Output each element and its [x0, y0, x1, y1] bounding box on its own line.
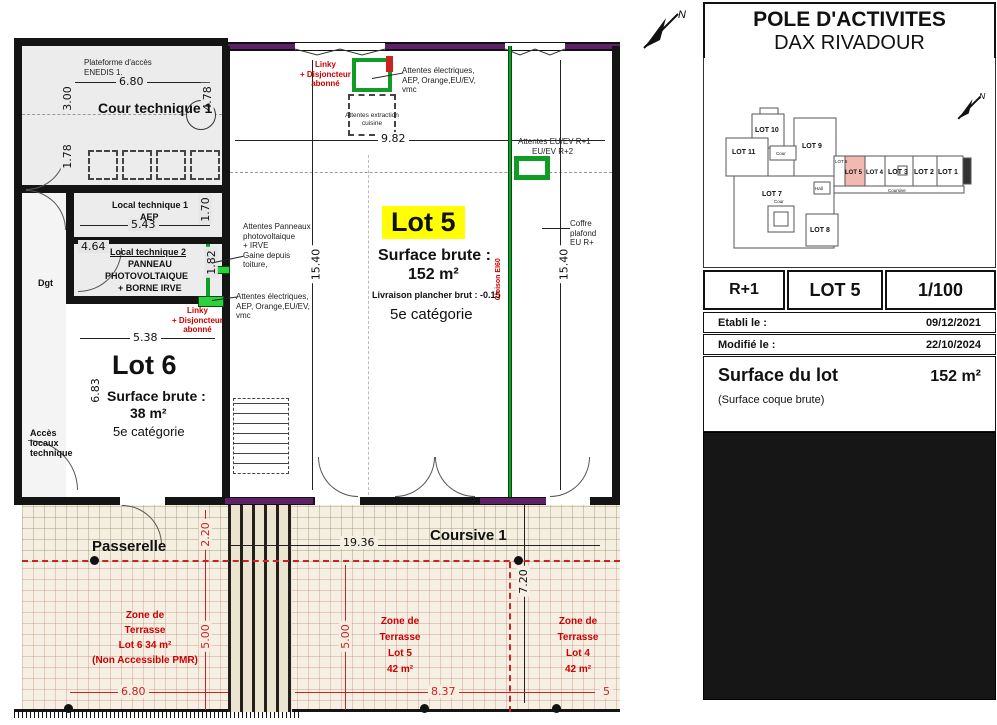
etabli-label: Etabli le : [718, 317, 767, 329]
line: AEP, Orange,EU/EV, [402, 76, 476, 85]
dim-label: 15.40 [557, 246, 570, 284]
axis-dashed-line [230, 172, 612, 173]
local1-aep-label: AEP [140, 212, 159, 222]
lot5-category: 5e catégorie [390, 306, 473, 323]
keyplan-lot9: LOT 9 [802, 143, 822, 150]
panneau-label-3: + BORNE IRVE [118, 283, 182, 293]
post-dot [552, 704, 561, 713]
north-letter: N [979, 91, 986, 101]
line: Attentes EU/EV R+1 [518, 137, 591, 146]
surface-value: 152 m² [930, 368, 981, 386]
dim-line [524, 505, 525, 703]
terrace-lot4-label: Zone de Terrasse Lot 4 42 m² [548, 614, 608, 678]
lot5-title: Lot 5 [382, 206, 465, 239]
railing-hatch [14, 712, 300, 718]
dim-label: 8.37 [428, 685, 459, 698]
line: + Disjoncteur [172, 316, 223, 325]
scale-cell: 1/100 [885, 270, 996, 310]
line: toiture, [243, 260, 267, 269]
keyplan-box: N [703, 58, 996, 268]
panneau-label-1: PANNEAU [128, 259, 172, 269]
keyplan-map: LOT 11 LOT 10 LOT 9 LOT 7 LOT 8 LOT 5 LO… [710, 106, 990, 256]
dim-label: 1.70 [199, 194, 212, 225]
line: Terrasse [125, 625, 166, 636]
dim-label: 5.38 [130, 331, 161, 344]
line: abonné [311, 79, 339, 88]
green-attente-box-euev [514, 156, 550, 180]
keyplan-lot7: LOT 7 [762, 191, 782, 198]
line: Attentes électriques, [402, 66, 474, 75]
modifie-row: Modifié le : 22/10/2024 [703, 334, 996, 355]
line: 42 m² [565, 664, 591, 675]
window-glazing-icon [505, 48, 565, 56]
terrace-lot6-label: Zone de Terrasse Lot 6 34 m² (Non Access… [85, 608, 205, 668]
line: Attentes électriques, [236, 292, 308, 301]
extraction-note: Attentes extraction cuisine [344, 112, 400, 128]
keyplan-lot8: LOT 8 [810, 227, 830, 234]
line: Attentes Panneaux [243, 222, 311, 231]
equipment-pad [156, 150, 186, 180]
level-cell: R+1 [703, 270, 785, 310]
equipment-pad [122, 150, 152, 180]
wall-right [612, 46, 620, 497]
passerelle-label: Passerelle [92, 538, 166, 555]
line: vmc [236, 311, 251, 320]
line: Zone de [381, 616, 419, 627]
surface-note: (Surface coque brute) [718, 394, 981, 406]
keyplan-lot10: LOT 10 [755, 127, 779, 134]
acces-line2: locaux [30, 438, 59, 448]
dim-line [230, 545, 600, 546]
acces-label: Accès locaux technique [30, 428, 73, 458]
door-gap-1 [120, 497, 165, 505]
post-dot [64, 704, 73, 713]
attentes-elec-note-top: Attentes électriques, AEP, Orange,EU/EV,… [402, 66, 476, 95]
line: Terrasse [558, 632, 599, 643]
plateforme-label: Plateforme d'accès ENEDIS 1. [84, 58, 152, 77]
line: vmc [402, 85, 417, 94]
linky-note-top: Linky + Disjoncteur abonné [300, 60, 351, 89]
dim-label: 15.40 [309, 246, 322, 284]
terrace-divider-dashed [509, 562, 511, 712]
line: Gaine depuis [243, 251, 290, 260]
stair-dashed [233, 398, 289, 474]
etabli-row: Etabli le : 09/12/2021 [703, 312, 996, 333]
linky-note-lot6: Linky + Disjoncteur abonné [172, 306, 223, 335]
line: 42 m² [387, 664, 413, 675]
line: (Non Accessible PMR) [92, 655, 198, 666]
line: AEP, Orange,EU/EV, [236, 302, 310, 311]
door-gap-2 [315, 497, 360, 505]
lot5-surface-label: Surface brute : [378, 247, 491, 265]
floor-plan-sheet: 6.80 3.00 4.78 1.78 5.43 1.70 4.64 1.82 … [0, 0, 997, 725]
keyplan-hall: Hall [815, 186, 823, 191]
boundary-dot [514, 556, 523, 565]
surface-box: Surface du lot 152 m² (Surface coque bru… [703, 356, 996, 432]
dim-label: 1.78 [61, 141, 74, 172]
plateforme-line2: ENEDIS 1. [84, 68, 123, 77]
dim-line-red [70, 692, 228, 693]
project-title-line1: POLE D'ACTIVITES [753, 8, 946, 32]
cloison-ei60-green-wall [508, 46, 512, 497]
dim-label: 3.00 [61, 83, 74, 114]
line: + IRVE [243, 241, 268, 250]
local1-label: Local technique 1 [112, 200, 188, 210]
euev-note: Attentes EU/EV R+1 EU/EV R+2 [518, 137, 591, 156]
line: cuisine [362, 120, 382, 127]
acces-line3: technique [30, 448, 73, 458]
line: Linky [187, 306, 208, 315]
dim-label: 5 [600, 685, 613, 698]
lot6-surface-value: 38 m² [130, 405, 167, 421]
window-glazing-icon [295, 48, 385, 56]
keyplan-lot11: LOT 11 [732, 149, 755, 156]
dim-label: 2.20 [199, 519, 212, 550]
equipment-pad [190, 150, 220, 180]
line: plafond [570, 229, 596, 238]
project-title-line2: DAX RIVADOUR [774, 32, 925, 55]
acces-line1: Accès [30, 428, 57, 438]
keyplan-lot4: LOT 4 [866, 170, 884, 176]
axis-dashed-line [368, 155, 369, 495]
terrace-boundary-dashed [22, 560, 620, 562]
modifie-date: 22/10/2024 [926, 339, 981, 351]
dim-label: 9.82 [378, 132, 409, 145]
dgt-label: Dgt [38, 278, 53, 288]
lot5-surface-value: 152 m² [408, 266, 459, 284]
attentes-elec-note-lot6: Attentes électriques, AEP, Orange,EU/EV,… [236, 292, 310, 321]
north-letter: N [678, 9, 686, 21]
lot6-title: Lot 6 [112, 350, 177, 381]
dim-label: 4.64 [78, 240, 109, 253]
dim-label: 19.36 [340, 536, 378, 549]
terrace-lot5-label: Zone de Terrasse Lot 5 42 m² [370, 614, 430, 678]
line: Zone de [126, 610, 164, 621]
title-block: POLE D'ACTIVITES DAX RIVADOUR [703, 2, 996, 60]
line: Coffre [570, 219, 592, 228]
line: Terrasse [380, 632, 421, 643]
keyplan-lot6: LOT 6 [835, 159, 848, 164]
etabli-date: 09/12/2021 [926, 317, 981, 329]
boundary-dot [90, 556, 99, 565]
lot-cell: LOT 5 [787, 270, 883, 310]
surface-label: Surface du lot [718, 365, 838, 386]
panneaux-pv-note: Attentes Panneaux photovoltaique + IRVE … [243, 222, 311, 270]
lot6-surface-label: Surface brute : [107, 388, 206, 404]
keyplan-coursive: Coursive [888, 188, 906, 193]
cloison-ei60-label: Cloison EI60 [495, 258, 503, 300]
plateforme-line1: Plateforme d'accès [84, 58, 152, 67]
line: EU/EV R+2 [518, 147, 573, 156]
keyplan-lot3: LOT 3 [888, 169, 908, 176]
line: photovoltaique [243, 232, 295, 241]
coursive-label: Coursive 1 [430, 527, 507, 544]
door-gap-3 [546, 497, 590, 505]
lot6-category: 5e catégorie [113, 424, 185, 439]
line: + Disjoncteur [300, 70, 351, 79]
window-top-2 [505, 42, 565, 51]
terrace-stair-band [228, 505, 292, 712]
wall-bottom-purple-2 [480, 497, 546, 505]
lot5-livraison: Livraison plancher brut : -0.15 [372, 290, 501, 300]
line: Linky [315, 60, 336, 69]
wall-bottom-purple-1 [225, 497, 313, 505]
line: Lot 4 [566, 648, 590, 659]
linky-marker [386, 56, 393, 72]
wall-left [14, 38, 22, 505]
keyplan-lot2: LOT 2 [914, 169, 934, 176]
line: EU R+ [570, 238, 594, 247]
wall-dgt-right [66, 193, 74, 304]
line: Lot 6 34 m² [119, 640, 172, 651]
north-arrow-icon: N [636, 4, 688, 61]
panel-black-area [703, 432, 996, 700]
keyplan-cour1: Cour [776, 151, 786, 156]
local2-label: Local technique 2 [110, 247, 186, 257]
dim-label: 6.83 [89, 375, 102, 406]
coffre-note: Coffre plafond EU R+ [570, 219, 596, 248]
keyplan-lot5: LOT 5 [845, 170, 863, 176]
equipment-pad [88, 150, 118, 180]
window-top-1 [295, 42, 385, 51]
wall-top-left [14, 38, 228, 46]
keyplan-lot1: LOT 1 [938, 169, 958, 176]
modifie-label: Modifié le : [718, 339, 775, 351]
panneau-label-2: PHOTOVOLTAIQUE [105, 271, 188, 281]
line: Zone de [559, 616, 597, 627]
dim-label: 5.00 [339, 621, 352, 652]
keyplan-cour2: Cour [774, 199, 784, 204]
cour-technique-label: Cour technique 1 [98, 100, 212, 116]
post-dot [420, 704, 429, 713]
line: Attentes extraction [345, 112, 399, 119]
wall-cour-bottom [22, 185, 228, 193]
dim-label: 6.80 [118, 685, 149, 698]
line: Lot 5 [388, 648, 412, 659]
line: abonné [183, 325, 211, 334]
leader-line [542, 228, 570, 229]
dim-label: 7.20 [517, 566, 530, 597]
